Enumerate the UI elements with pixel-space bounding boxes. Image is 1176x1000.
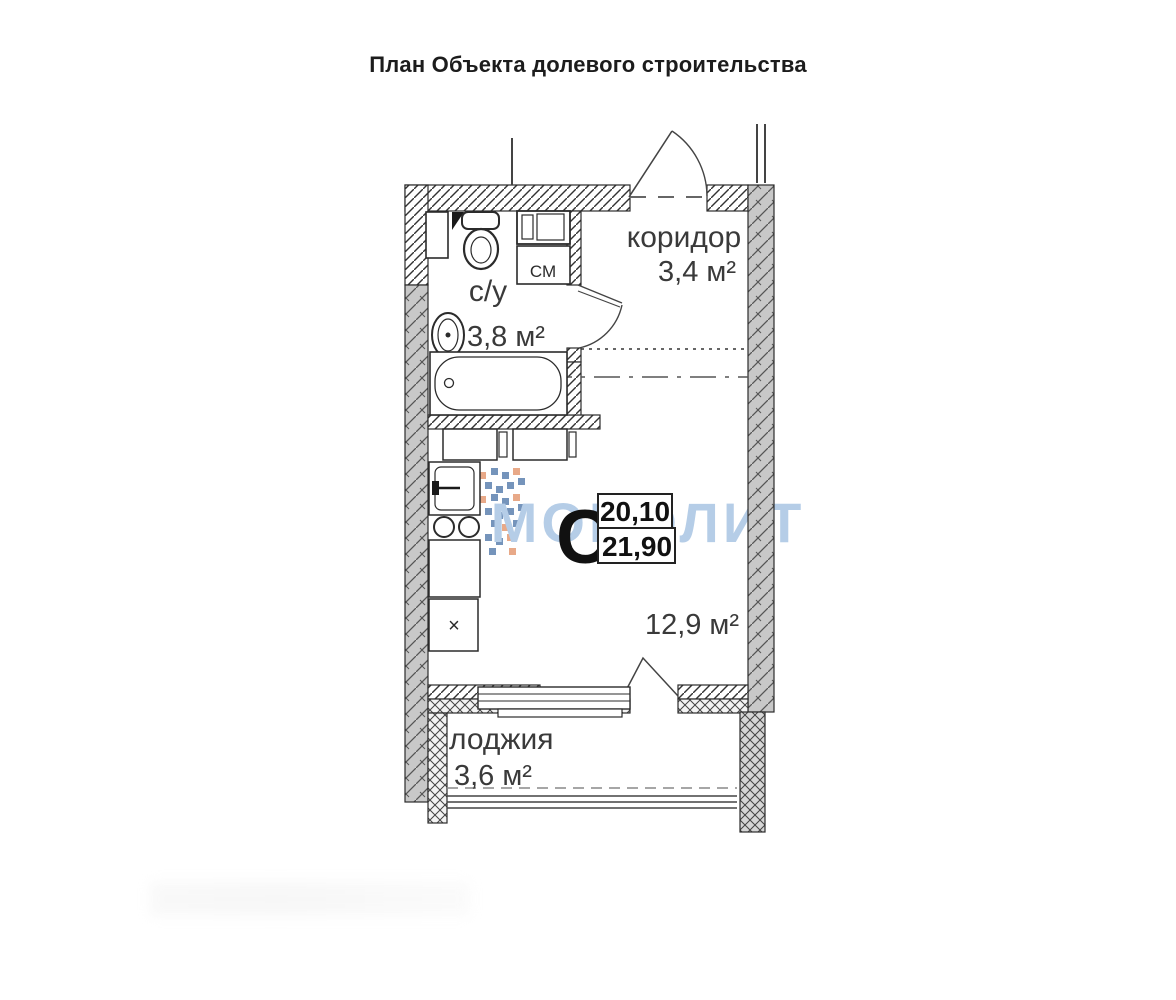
entrance-door-leaf xyxy=(629,131,672,197)
entrance-door-arc xyxy=(672,131,707,196)
faucet-base xyxy=(432,481,439,495)
cabinet-a xyxy=(443,429,497,460)
wall-left-outer xyxy=(405,285,428,802)
corridor-label: коридор xyxy=(627,221,741,254)
cabinet-mark: × xyxy=(448,615,460,637)
cooktop xyxy=(434,517,479,537)
living-area: 12,9 м² xyxy=(645,609,739,641)
washing-machine-drum xyxy=(537,214,564,240)
wall-right-outer xyxy=(748,185,774,712)
wall-bathroom-right-lower xyxy=(567,362,581,415)
bathtub-drain xyxy=(445,379,454,388)
loggia-label: лоджия xyxy=(449,723,553,756)
washing-machine-panel xyxy=(522,215,533,239)
duct-shaft xyxy=(426,212,448,258)
loggia-window xyxy=(478,687,630,717)
sink-drain xyxy=(446,333,451,338)
corridor-area: 3,4 м² xyxy=(658,256,736,288)
bathroom-area: 3,8 м² xyxy=(467,321,545,353)
bathroom-door xyxy=(578,285,622,348)
window-frame xyxy=(478,687,630,709)
window-sill xyxy=(498,709,622,717)
loggia-area: 3,6 м² xyxy=(454,760,532,792)
bathroom-sink xyxy=(432,313,464,357)
toilet-bowl-inner xyxy=(471,237,491,263)
cabinet-b-divider xyxy=(569,432,576,457)
kitchen-sink xyxy=(429,462,480,515)
wall-loggia-top-right-b xyxy=(678,699,748,713)
unit-area-top: 20,10 xyxy=(600,496,670,527)
wall-left-upper xyxy=(405,185,428,285)
kitchen-counter xyxy=(429,540,480,597)
bathtub xyxy=(430,352,567,415)
unit-area-bottom: 21,90 xyxy=(602,531,672,562)
washing-machine: СМ xyxy=(517,211,570,284)
wall-loggia-right xyxy=(740,712,765,832)
toilet-tank xyxy=(462,212,499,229)
bathroom-fixtures: СМ xyxy=(426,211,570,415)
bathroom-label: с/у xyxy=(469,275,507,308)
wall-loggia-left xyxy=(428,713,447,823)
loggia-glazing xyxy=(447,796,737,808)
floor-plan-page: План Объекта долевого строительства xyxy=(0,0,1176,1000)
wall-loggia-top-right-a xyxy=(678,685,748,699)
unit-info: С 20,10 21,90 xyxy=(556,494,675,580)
floor-plan-svg: МОНОЛИТ xyxy=(0,0,1176,1000)
wall-bathroom-right-stub xyxy=(567,348,581,362)
wall-top-left xyxy=(405,185,630,211)
cabinet-a-divider xyxy=(499,432,507,457)
washing-machine-label: СМ xyxy=(530,262,556,281)
toilet xyxy=(462,212,499,269)
wall-bathroom-bottom xyxy=(428,415,600,429)
cabinet-b xyxy=(513,429,567,460)
burner-left xyxy=(434,517,454,537)
bathroom-door-arc xyxy=(579,305,622,348)
entrance-door xyxy=(629,131,707,197)
wall-top-right xyxy=(707,185,748,211)
burner-right xyxy=(459,517,479,537)
